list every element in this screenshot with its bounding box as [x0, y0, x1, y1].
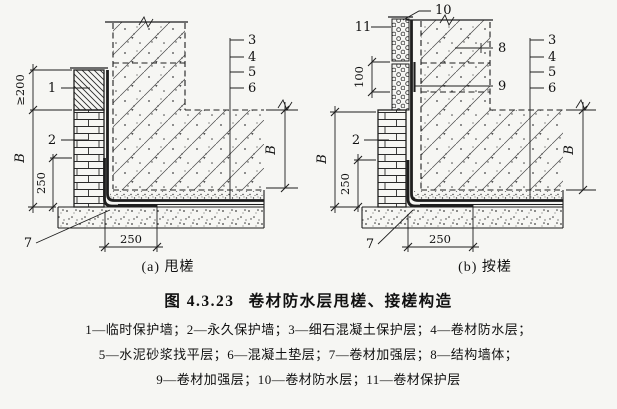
structural-wall-and-slab	[113, 22, 264, 190]
legend-line-2: 5—水泥砂浆找平层；6—混凝土垫层；7—卷材加强层；8—结构墙体；	[0, 342, 617, 367]
dim-right-depth: B	[562, 145, 577, 156]
callout-3-protective-layer: 3	[548, 33, 556, 48]
callout-1-temporary-wall: 1	[48, 81, 56, 96]
callout-4-membrane: 4	[248, 50, 256, 65]
permanent-protective-wall	[74, 110, 104, 207]
diagram-a-caption: (a) 甩槎	[141, 259, 194, 275]
callout-8-structural-wall: 8	[498, 41, 506, 56]
dim-buried-depth: B	[13, 153, 28, 164]
dim-buried-depth: B	[315, 154, 330, 165]
overlap-dimension-lines	[372, 56, 390, 98]
concrete-bedding	[58, 207, 264, 228]
structural-wall-and-slab	[421, 20, 563, 190]
callout-4-membrane: 4	[548, 50, 556, 65]
figure-title: 卷材防水层甩槎、接槎构造	[249, 293, 453, 310]
floor-protective-layer	[414, 191, 563, 199]
right-dimension-lines	[266, 102, 298, 188]
callout-6-bedding: 6	[248, 81, 256, 96]
dim-overlap: 100	[352, 66, 366, 88]
legend: 1—临时保护墙；2—永久保护墙；3—细石混凝土保护层；4—卷材防水层； 5—水泥…	[0, 317, 617, 392]
dim-above-ground: ≥200	[13, 74, 27, 106]
legend-line-3: 9—卷材加强层；10—卷材防水层；11—卷材保护层	[0, 367, 617, 392]
legend-line-1: 1—临时保护墙；2—永久保护墙；3—细石混凝土保护层；4—卷材防水层；	[0, 317, 617, 342]
callout-7-reinforcing-strip: 7	[366, 237, 374, 252]
callout-9-reinforcing-strip: 9	[498, 79, 506, 94]
callout-7-reinforcing-strip: 7	[24, 236, 32, 251]
floor-protective-layer	[110, 191, 264, 199]
figure-caption: 图 4.3.23卷材防水层甩槎、接槎构造	[0, 289, 617, 311]
waterproofing-detail-figure: 1 2 7 3 4 5 6 ≥200 B 250 250 B (a) 甩槎	[0, 0, 617, 280]
callout-6-bedding: 6	[548, 81, 556, 96]
dim-right-depth: B	[264, 145, 279, 156]
callout-3-protective-layer: 3	[248, 33, 256, 48]
callout-2-permanent-wall: 2	[48, 133, 56, 148]
dim-corner-upturn: 250	[338, 173, 352, 195]
callout-11-protection-layer: 11	[355, 20, 372, 35]
diagram-b: 10 11 8 9 2 7 3 4 5 6 100 B 250	[315, 3, 596, 275]
diagram-a: 1 2 7 3 4 5 6 ≥200 B 250 250 B (a) 甩槎	[0, 0, 298, 275]
callout-10-membrane: 10	[435, 3, 452, 18]
dim-strip-width: 250	[120, 232, 142, 246]
diagram-b-caption: (b) 按槎	[458, 259, 512, 275]
drawing-sheet: 1 2 7 3 4 5 6 ≥200 B 250 250 B (a) 甩槎	[0, 0, 617, 409]
dim-strip-width: 250	[429, 232, 451, 246]
callout-5-screed: 5	[248, 65, 256, 80]
figure-number: 图 4.3.23	[164, 293, 234, 310]
callout-5-screed: 5	[548, 65, 556, 80]
concrete-bedding	[362, 207, 563, 228]
permanent-protective-wall	[378, 110, 406, 207]
dim-corner-upturn: 250	[34, 172, 48, 194]
callout-2-permanent-wall: 2	[352, 133, 360, 148]
membrane-protection-layer-lower	[392, 64, 409, 110]
temporary-protective-wall	[74, 70, 104, 110]
left-dimension-lines	[330, 106, 376, 213]
membrane-protection-layer-upper	[392, 19, 409, 61]
